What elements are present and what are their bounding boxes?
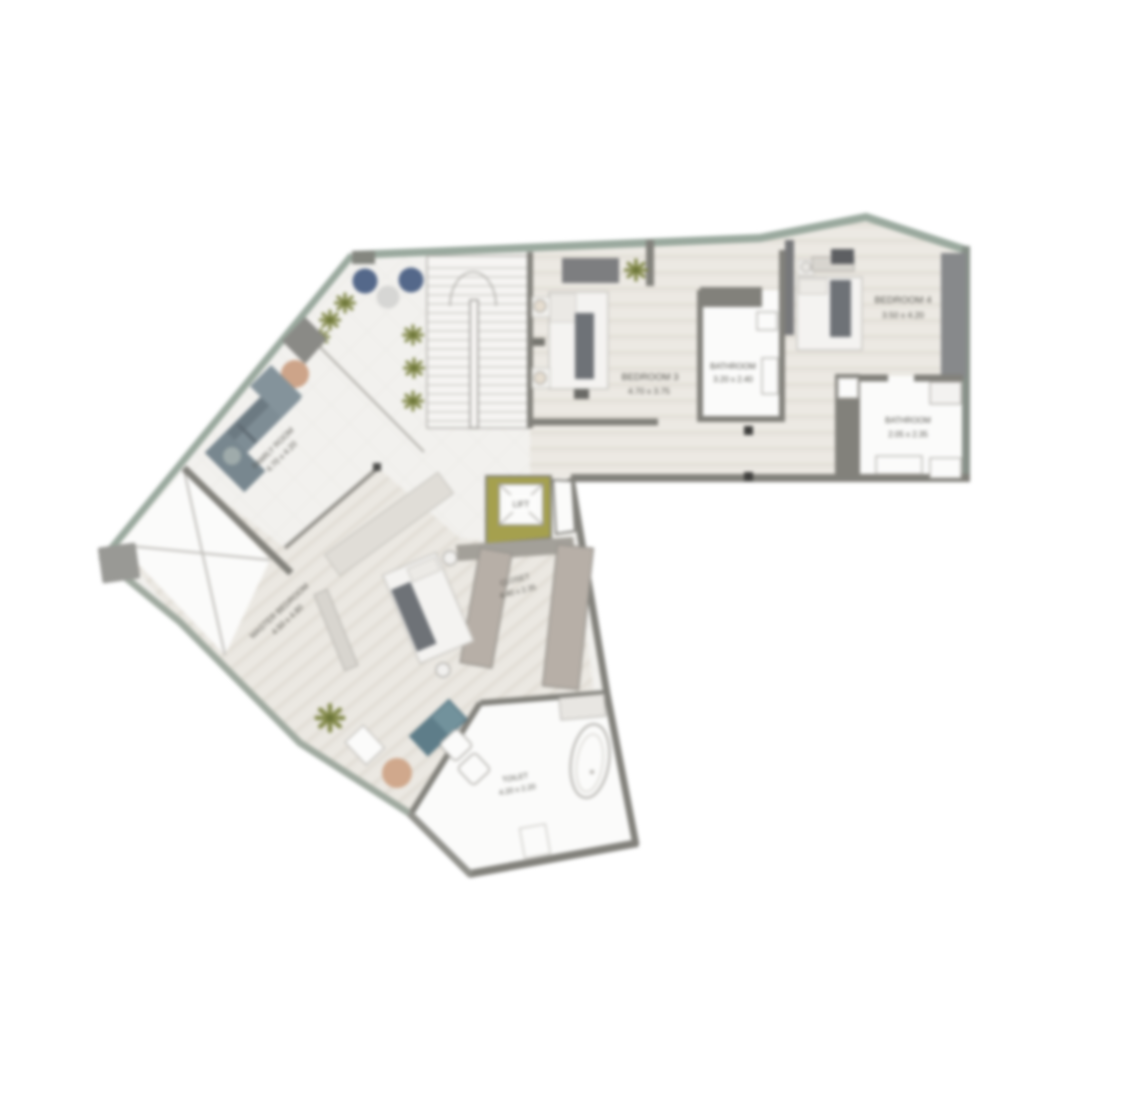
svg-text:3.50 x 4.20: 3.50 x 4.20 xyxy=(882,310,924,320)
svg-text:3.20 x 2.40: 3.20 x 2.40 xyxy=(713,375,753,384)
svg-text:LIFT: LIFT xyxy=(513,500,530,509)
svg-text:BEDROOM 3: BEDROOM 3 xyxy=(621,372,678,383)
svg-text:2.05 x 2.35: 2.05 x 2.35 xyxy=(888,430,928,439)
svg-text:BEDROOM 4: BEDROOM 4 xyxy=(874,295,931,306)
svg-text:BATHROOM: BATHROOM xyxy=(710,362,756,371)
svg-text:4.70 x 3.75: 4.70 x 3.75 xyxy=(628,386,670,396)
svg-text:BATHROOM: BATHROOM xyxy=(885,416,931,425)
